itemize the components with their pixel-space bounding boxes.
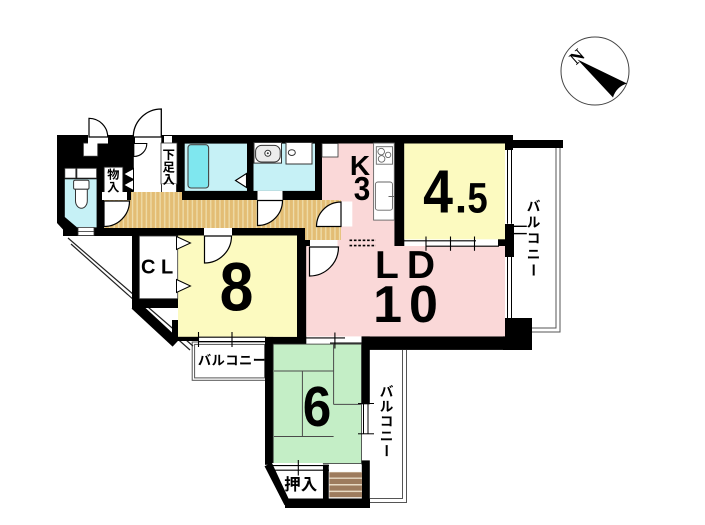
svg-text:3: 3 — [354, 171, 371, 208]
svg-text:.: . — [455, 173, 467, 222]
svg-text:6: 6 — [303, 375, 332, 438]
svg-text:5: 5 — [467, 175, 487, 222]
svg-text:C L: C L — [141, 257, 173, 279]
svg-text:4: 4 — [423, 158, 453, 226]
svg-text:8: 8 — [220, 248, 254, 326]
svg-text:10: 10 — [373, 276, 445, 334]
